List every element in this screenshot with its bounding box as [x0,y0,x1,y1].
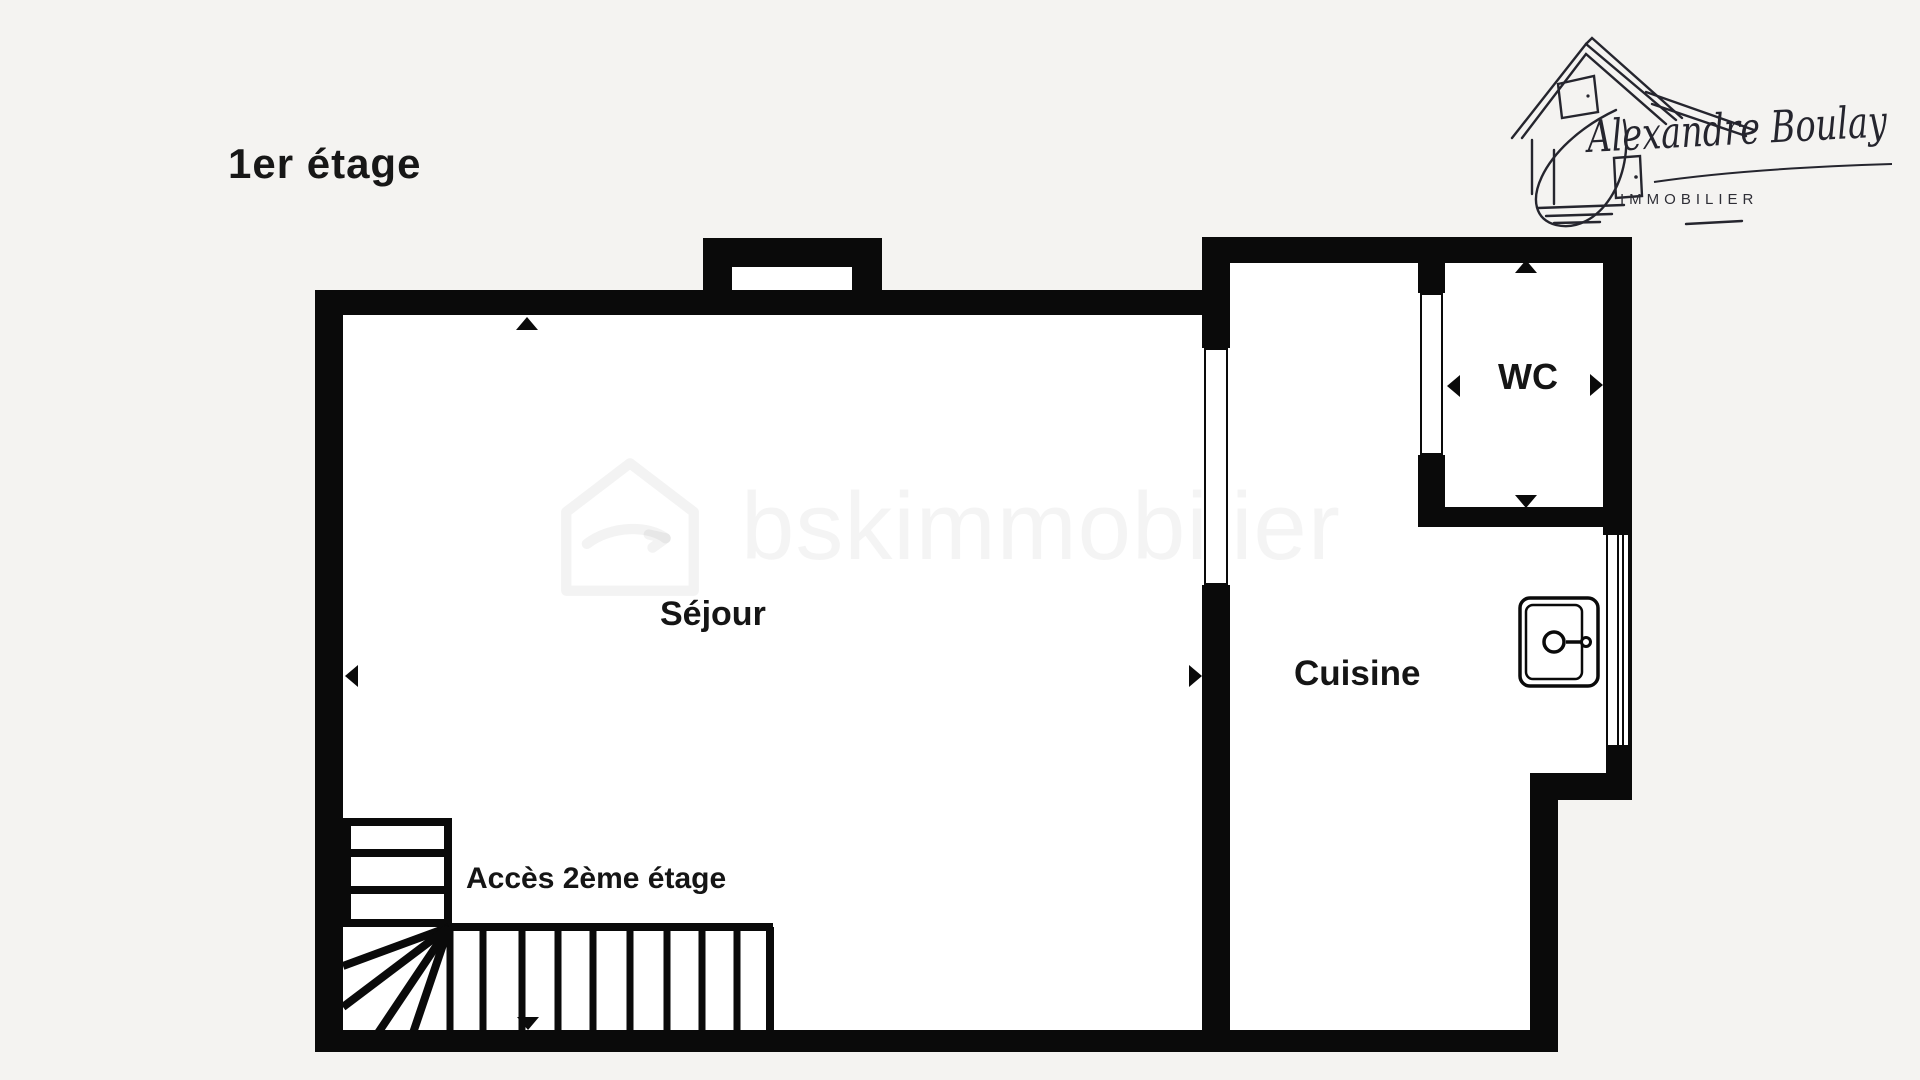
wall-wc-bottom [1418,507,1632,527]
wall-alcove-right [852,238,882,315]
dimension-arrow-up-sejour-icon [516,317,538,330]
wall-right-mid [1606,745,1632,773]
dimension-arrow-right-sejour-icon [1189,665,1202,687]
wall-cuisine-top [1202,237,1632,263]
dimension-arrow-left-sejour-icon [345,665,358,687]
window-opening-cuisine [1606,535,1632,745]
page-title: 1er étage [228,140,421,188]
agency-logo: Alexandre Boulay IMMOBILIER [1496,18,1900,233]
dimension-arrow-left-wc-icon [1447,375,1460,397]
wall-bottom [315,1030,1558,1052]
room-cuisine-area-bottom [1230,773,1530,1030]
wall-right-lower [1530,773,1558,1052]
logo-name: Alexandre Boulay [1583,96,1889,163]
wall-sejour-top [315,290,1230,315]
dimension-arrow-up-wc-icon [1515,260,1537,273]
wall-right-upper [1603,237,1632,535]
door-opening-wc [1418,293,1445,455]
staircase [315,810,790,1052]
sink-icon [1516,594,1602,690]
room-cuisine-area-top [1230,263,1418,527]
dimension-arrow-down-sejour-icon [517,1017,539,1030]
room-label-wc: WC [1498,357,1558,397]
wall-divider-lower [1202,585,1230,1052]
door-opening-sejour-cuisine [1202,348,1230,585]
stairs-label: Accès 2ème étage [466,862,726,895]
dimension-arrow-down-wc-icon [1515,495,1537,508]
wall-wc-left-upper [1418,240,1445,293]
floorplan-page: { "page": { "title": "1er étage" }, "log… [0,0,1920,1080]
room-label-cuisine: Cuisine [1294,655,1420,694]
logo-subtitle: IMMOBILIER [1620,191,1758,208]
room-label-sejour: Séjour [660,596,766,633]
dimension-arrow-right-wc-icon [1590,374,1603,396]
wall-left [315,290,343,1052]
